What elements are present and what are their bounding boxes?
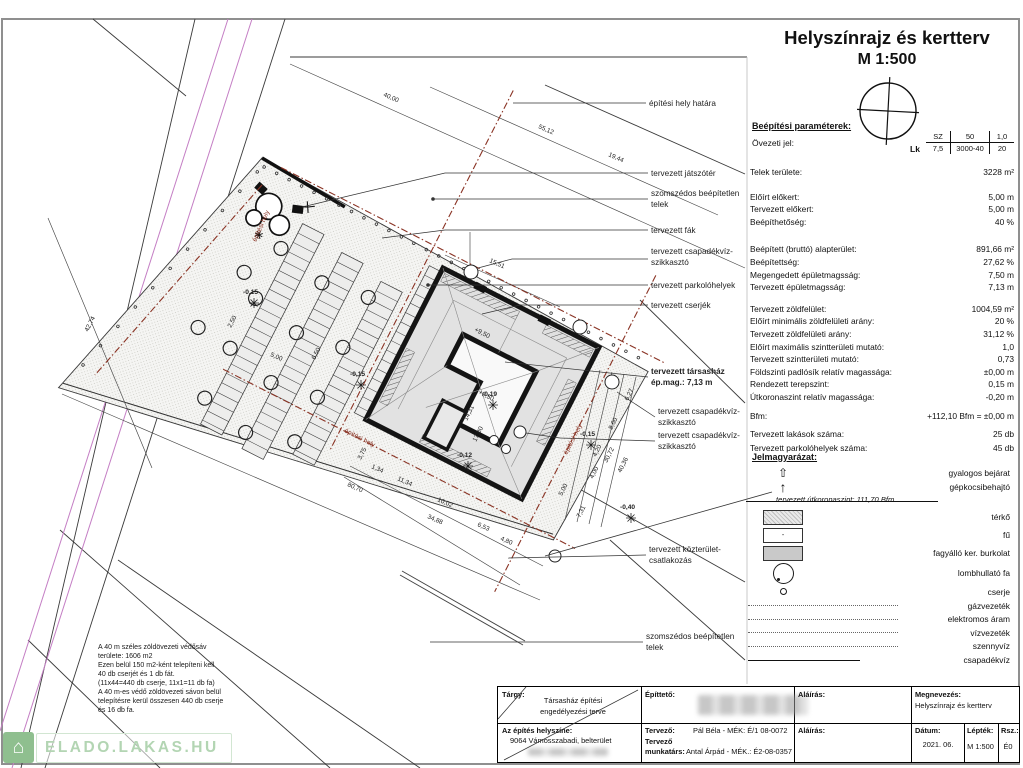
parameter-row: Előírt előkert:5,00 m (750, 191, 1014, 204)
sheet-title: Helyszínrajz és kertterv (758, 27, 1016, 49)
shrub-dot (512, 292, 515, 295)
legend-icon-cell (748, 619, 900, 620)
shrub-icon (780, 588, 787, 595)
shrub-dot (624, 350, 627, 353)
parameter-value: 0,73 (998, 353, 1014, 366)
parameter-value: 0,15 m (988, 378, 1014, 391)
designer-label: Tervező: (645, 726, 675, 735)
client-label: Építtető: (645, 690, 675, 699)
parameter-value: 5,00 m (988, 191, 1014, 204)
parameter-value: 7,50 m (988, 269, 1014, 282)
legend-icon-cell (748, 660, 900, 661)
shrub-dot (499, 286, 502, 289)
legend-item: cserje (748, 584, 1010, 599)
legend-icon-cell (748, 510, 818, 525)
parameter-value: 1,0 (1002, 341, 1014, 354)
shrub-dot (537, 305, 540, 308)
shrub-dot (587, 330, 590, 333)
zone-table: SZ 50 1,0 7,5 3000-40 20 (926, 131, 1014, 154)
parameter-label: Tervezett lakások száma: (750, 428, 844, 441)
legend-item: csapadékvíz (748, 653, 1010, 667)
shrub-dot (562, 318, 565, 321)
parameter-row: Előírt maximális szintterületi mutató:1,… (750, 341, 1014, 354)
location-label: Az építés helyszíne: (502, 726, 572, 735)
parameter-row: Beépítettség:27,62 % (750, 256, 1014, 269)
parameter-value: 891,66 m² (976, 243, 1014, 256)
spot-star-icon (463, 461, 473, 471)
legend-item-label: cserje (818, 587, 1010, 597)
spot-elevation-label: -0,12 (457, 452, 472, 459)
dimension-label: 34,88 (426, 513, 444, 526)
callout-label: tervezett csapadékvíz- (658, 407, 740, 416)
legend-item-label: fagyálló ker. burkolat (818, 548, 1010, 558)
leader-end-dot (431, 197, 435, 201)
parameter-row: Tervezett zöldfelület:1004,59 m² (750, 303, 1014, 316)
parameter-value: 20 % (995, 315, 1014, 328)
legend-road-level-row: tervezett útkoronaszint: 111,70 Bfm (748, 494, 1010, 508)
scale-label: Lépték: (967, 726, 993, 735)
parameter-value: -0,20 m (986, 391, 1014, 404)
parameter-row: Földszinti padlósík relatív magassága:±0… (750, 366, 1014, 379)
legend-item-label: gázvezeték (900, 601, 1010, 611)
legend-icon-cell (748, 588, 818, 595)
title-block: Tárgy: Társasház építési engedélyezési t… (497, 686, 1020, 763)
parameter-label: Telek területe: (750, 166, 802, 179)
pedestrian-arrow-icon: ⇧ (778, 467, 788, 479)
legend-icon-cell: ⇧ (748, 467, 818, 479)
shrub-dot (599, 337, 602, 340)
callout-leader (382, 230, 648, 238)
watermark-text: ELADO.LAKAS.HU (36, 733, 232, 763)
spot-star-icon (356, 380, 366, 390)
parameter-row: Beépített (bruttó) alapterület:891,66 m² (750, 243, 1014, 256)
spot-elevation-label: -0,19 (482, 391, 497, 398)
callout-label: tervezett társasház (651, 367, 725, 376)
zone-cell: 1,0 (990, 131, 1014, 142)
parameter-value: 7,13 m (988, 281, 1014, 294)
legend-item: fagyálló ker. burkolat (748, 544, 1010, 562)
parameter-value: +112,10 Bfm = ±0,00 m (927, 410, 1014, 423)
road-level-label: tervezett útkoronaszint: 111,70 Bfm (776, 495, 894, 504)
callout-label: ép.mag.: 7,13 m (651, 378, 712, 387)
parameter-value: ±0,00 m (984, 366, 1014, 379)
parameter-row: Tervezett előkert:5,00 m (750, 203, 1014, 216)
paving-swatch-icon (763, 510, 803, 525)
dimension-label: 40,00 (382, 91, 400, 104)
legend-item: -fű (748, 526, 1010, 544)
callout-label: szikkasztó (658, 418, 696, 427)
parameter-label: Tervezett szintterületi mutató: (750, 353, 859, 366)
dimension-label: 55,12 (537, 123, 555, 136)
callout-leader (508, 555, 646, 558)
note-line: Ezen belül 150 m2-ként telepíteni kell (98, 661, 288, 670)
legend-icon-cell (748, 646, 900, 647)
sheetno-value: É0 (998, 742, 1018, 751)
legend-icon-cell: ↑ (748, 480, 818, 494)
shrub-dot (612, 343, 615, 346)
parameter-value: 25 db (993, 428, 1014, 441)
parameter-value: 1004,59 m² (972, 303, 1014, 316)
parameter-value: 40 % (995, 216, 1014, 229)
callout-label: tervezett közterület- (649, 545, 721, 554)
parameter-label: Tervezett előkert: (750, 203, 814, 216)
spot-elevation-label: -0,40 (620, 504, 635, 511)
spot-elevation-label: -0,15 (580, 431, 595, 438)
legend-item: ⇧gyalogos bejárat (748, 466, 1010, 480)
watermark: ⌂ ELADO.LAKAS.HU (3, 732, 232, 763)
legend-item: szennyvíz (748, 640, 1010, 654)
params-heading: Beépítési paraméterek: (752, 121, 851, 131)
legend-item: vízvezeték (748, 626, 1010, 640)
legend-item: elektromos áram (748, 613, 1010, 627)
note-line: A 40 m-es védő zöldövezeti sávon belül (98, 688, 288, 697)
associate-label: munkatárs: (645, 747, 685, 756)
name-label: Megnevezés: (915, 690, 961, 699)
shrub-dot (549, 311, 552, 314)
callout-label: csatlakozás (649, 556, 692, 565)
designer-value: Pál Béla - MÉK: É/1 08-0072 (693, 726, 788, 735)
note-line: telepítésre kerül összesen 440 db cserje (98, 697, 288, 706)
pavement-swatch-icon (763, 546, 803, 561)
name-value: Helyszínrajz és kertterv (915, 701, 992, 710)
legend-item-label: elektromos áram (900, 614, 1010, 624)
building-parameters-list: Telek területe:3228 m²Előírt előkert:5,0… (750, 166, 1014, 454)
dimension-label: 6,53 (476, 521, 491, 533)
parameter-label: Előírt minimális zöldfelületi arány: (750, 315, 874, 328)
callout-label: telek (646, 643, 664, 652)
dimension-label: 4,80 (499, 535, 514, 547)
signature-label: Aláírás: (798, 726, 825, 735)
utility-line-icon (748, 646, 898, 647)
date-label: Dátum: (915, 726, 940, 735)
callout-labels: építési hely határatervezett játszótérsz… (646, 99, 740, 652)
parameter-row: Bfm:+112,10 Bfm = ±0,00 m (750, 410, 1014, 423)
subject-value: Társasház építési (518, 696, 628, 705)
signature-label: Aláírás: (798, 690, 825, 699)
parameter-label: Útkoronaszint relatív magassága: (750, 391, 874, 404)
zone-label: Övezeti jel: (752, 138, 794, 148)
spot-star-icon (586, 440, 596, 450)
sheet-scale: M 1:500 (758, 51, 1016, 69)
parameter-value: 5,00 m (988, 203, 1014, 216)
parameter-value: 27,62 % (983, 256, 1014, 269)
subject-value: engedélyezési terve (518, 707, 628, 716)
legend-item-label: szennyvíz (900, 641, 1010, 651)
date-value: 2021. 06. (915, 740, 961, 749)
parameter-label: Tervezett zöldfelület: (750, 303, 826, 316)
parameter-label: Előírt előkert: (750, 191, 799, 204)
callout-label: tervezett fák (651, 226, 697, 235)
redacted-client-name (698, 695, 808, 715)
parameter-label: Előírt maximális szintterületi mutató: (750, 341, 884, 354)
zone-cell: SZ (926, 131, 950, 142)
legend-item-label: fű (818, 530, 1010, 540)
legend-item-label: gépkocsibehajtó (818, 482, 1010, 492)
designer2-label: Tervező (645, 737, 672, 746)
parameter-label: Tervezett zöldfelületi arány: (750, 328, 851, 341)
callout-label: szikkasztó (651, 258, 689, 267)
callout-label: tervezett parkolóhelyek (651, 281, 736, 290)
shrub-dot (637, 356, 640, 359)
parameter-value: 45 db (993, 442, 1014, 455)
dimension-label: 80,70 (346, 481, 364, 494)
parameter-label: Rendezett terepszint: (750, 378, 829, 391)
callout-label: telek (651, 200, 669, 209)
legend-icon-cell (748, 632, 900, 633)
green-belt-notes: A 40 m széles zöldövezeti védősávterület… (98, 643, 288, 715)
parameter-label: Beépítettség: (750, 256, 799, 269)
house-icon: ⌂ (3, 732, 34, 763)
parameter-row: Beépíthetőség:40 % (750, 216, 1014, 229)
legend-item-label: térkő (818, 512, 1010, 522)
utility-line-icon (748, 619, 898, 620)
callout-label: tervezett cserjék (651, 301, 712, 310)
zone-cell: 50 (950, 131, 990, 142)
parameter-row: Tervezett szintterületi mutató:0,73 (750, 353, 1014, 366)
parameter-row: Tervezett zöldfelületi arány:31,12 % (750, 328, 1014, 341)
legend-item: lombhullató fa (748, 562, 1010, 584)
parameter-label: Beépíthetőség: (750, 216, 806, 229)
rainwater-line-icon (748, 660, 860, 661)
legend-icon-cell (748, 605, 900, 606)
spot-star-icon (626, 513, 636, 523)
shrub-dot (524, 299, 527, 302)
utility-line-icon (748, 605, 898, 606)
note-line: és 16 db fa. (98, 706, 288, 715)
note-line: területe: 1606 m2 (98, 652, 288, 661)
parameter-row: Megengedett épületmagsság:7,50 m (750, 269, 1014, 282)
callout-label: tervezett csapadékvíz- (658, 431, 740, 440)
dimension-label: 15,51 (488, 257, 506, 270)
callout-label: szikkasztó (658, 442, 696, 451)
leader-end-dot (426, 283, 430, 287)
legend-heading: Jelmagyarázat: (752, 452, 817, 462)
scale-value: M 1:500 (964, 742, 997, 751)
legend-icon-cell (748, 563, 818, 584)
callout-label: tervezett játszótér (651, 169, 716, 178)
spot-elevation-label: -0,15 (350, 371, 365, 378)
legend-list: ⇧gyalogos bejárat↑gépkocsibehajtóterveze… (748, 466, 1010, 667)
legend-item-label: csapadékvíz (900, 655, 1010, 665)
callout-leader (302, 173, 648, 207)
parameter-row: Rendezett terepszint:0,15 m (750, 378, 1014, 391)
legend-item: ↑gépkocsibehajtó (748, 480, 1010, 494)
grass-swatch-icon: - (763, 528, 803, 543)
parameter-row: Telek területe:3228 m² (750, 166, 1014, 179)
callout-label: szomszédos beépítetlen (646, 632, 735, 641)
legend-item-label: lombhullató fa (818, 568, 1010, 578)
dimension-label: 42,74 (84, 315, 98, 333)
utility-line-icon (748, 632, 898, 633)
north-symbol-icon (855, 75, 920, 146)
tree-icon (773, 563, 794, 584)
legend-item: gázvezeték (748, 599, 1010, 613)
parameter-label: Megengedett épületmagsság: (750, 269, 860, 282)
legend-item: térkő (748, 508, 1010, 526)
parameter-row: Előírt minimális zöldfelületi arány:20 % (750, 315, 1014, 328)
car-arrow-icon: ↑ (780, 480, 787, 494)
site-plan-sheet: +9,50 +9,50 építési hely határatervezett… (0, 0, 1023, 768)
parameter-row: Útkoronaszint relatív magassága:-0,20 m (750, 391, 1014, 404)
parameter-label: Beépített (bruttó) alapterület: (750, 243, 857, 256)
parameter-label: Földszinti padlósík relatív magassága: (750, 366, 892, 379)
spot-elevation-label: -0,15 (243, 289, 258, 296)
parameter-row: Tervezett lakások száma:25 db (750, 428, 1014, 441)
location-value: 9064 Vámosszabadi, belterület (510, 736, 611, 745)
legend-item-label: gyalogos bejárat (818, 468, 1010, 478)
parameter-value: 3228 m² (983, 166, 1014, 179)
sheetno-label: Rsz.: (1001, 726, 1019, 735)
zone-cell: 7,5 (926, 143, 950, 154)
dimension-label: 7,31 (576, 504, 588, 519)
dimension-label: 40,36 (617, 456, 631, 474)
callout-label: tervezett csapadékvíz- (651, 247, 733, 256)
callout-label: építési hely határa (649, 99, 716, 108)
associate-value: Antal Árpád - MÉK.: É2-08-0357 (686, 747, 792, 756)
note-line: (11x44=440 db cserje, 11x1=11 db fa) (98, 679, 288, 688)
zone-code: Lk (910, 144, 920, 154)
legend-icon-cell: - (748, 528, 818, 543)
note-line: 40 db cserjét és 1 db fát. (98, 670, 288, 679)
legend-item-label: vízvezeték (900, 628, 1010, 638)
spot-star-icon (488, 400, 498, 410)
parameter-row: Tervezett épületmagsság:7,13 m (750, 281, 1014, 294)
redacted-address-line (528, 748, 608, 756)
dimension-label: 19,44 (607, 151, 625, 164)
zone-cell: 20 (990, 143, 1014, 154)
parameter-value: 31,12 % (983, 328, 1014, 341)
legend-icon-cell (748, 546, 818, 561)
zone-cell: 3000-40 (950, 143, 990, 154)
callout-label: szomszédos beépítetlen (651, 189, 740, 198)
note-line: A 40 m széles zöldövezeti védősáv (98, 643, 288, 652)
parameter-label: Bfm: (750, 410, 767, 423)
spot-star-icon (249, 298, 259, 308)
parameter-label: Tervezett épületmagsság: (750, 281, 845, 294)
